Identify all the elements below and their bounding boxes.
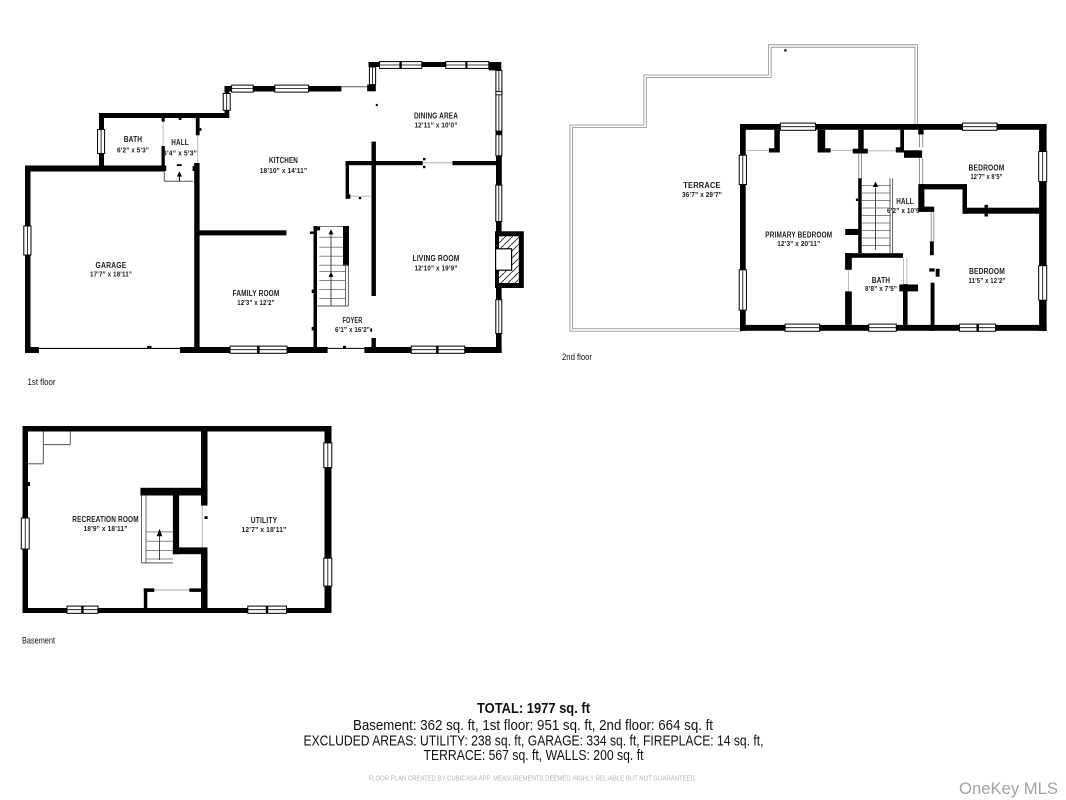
svg-text:12’3” x 12’2”: 12’3” x 12’2” (237, 298, 275, 307)
svg-text:11’5” x 12’2”: 11’5” x 12’2” (969, 276, 1006, 285)
svg-text:TERRACE: TERRACE (683, 181, 721, 190)
svg-text:BEDROOM: BEDROOM (969, 267, 1005, 276)
svg-text:2nd floor: 2nd floor (562, 352, 592, 362)
svg-text:BEDROOM: BEDROOM (969, 164, 1005, 173)
svg-text:3’4” x 5’3”: 3’4” x 5’3” (163, 149, 197, 158)
svg-text:UTILITY: UTILITY (251, 516, 278, 525)
svg-text:HALL: HALL (171, 138, 189, 147)
svg-text:RECREATION ROOM: RECREATION ROOM (72, 515, 139, 524)
svg-text:12’3” x 20’11”: 12’3” x 20’11” (777, 239, 820, 248)
svg-text:6’1” x 16’2”: 6’1” x 16’2” (335, 325, 370, 334)
svg-text:KITCHEN: KITCHEN (269, 156, 298, 165)
svg-text:DINING AREA: DINING AREA (414, 112, 458, 121)
svg-text:12’7” x 8’5”: 12’7” x 8’5” (971, 172, 1003, 181)
svg-text:HALL: HALL (896, 197, 914, 206)
svg-text:TOTAL: 1977 sq. ft: TOTAL: 1977 sq. ft (477, 700, 590, 717)
svg-text:Basement: 362 sq. ft, 1st floo: Basement: 362 sq. ft, 1st floor: 951 sq.… (353, 718, 713, 734)
svg-text:12’11” x 10’0”: 12’11” x 10’0” (415, 121, 458, 130)
svg-text:17’7” x 18’11”: 17’7” x 18’11” (90, 270, 132, 279)
svg-text:12’10” x 19’9”: 12’10” x 19’9” (415, 264, 458, 273)
svg-text:6’2” x 5’3”: 6’2” x 5’3” (117, 146, 149, 155)
svg-text:Basement: Basement (22, 636, 55, 646)
svg-text:18’9” x 18’11”: 18’9” x 18’11” (84, 524, 128, 533)
svg-text:FLOOR PLAN CREATED BY CUBICASA: FLOOR PLAN CREATED BY CUBICASA APP. MEAS… (369, 774, 697, 783)
svg-text:LIVING ROOM: LIVING ROOM (413, 254, 460, 263)
svg-text:12’7” x 18’11”: 12’7” x 18’11” (242, 525, 287, 534)
svg-text:OneKey MLS: OneKey MLS (959, 779, 1058, 798)
svg-text:TERRACE: 567 sq. ft, WALLS: 20: TERRACE: 567 sq. ft, WALLS: 200 sq. ft (424, 748, 644, 764)
svg-text:1st floor: 1st floor (28, 377, 56, 387)
svg-text:FAMILY ROOM: FAMILY ROOM (233, 289, 280, 298)
svg-text:8’8” x 7’5”: 8’8” x 7’5” (865, 284, 897, 293)
svg-text:18’10” x 14’11”: 18’10” x 14’11” (260, 166, 308, 175)
svg-text:36’7” x 29’7”: 36’7” x 29’7” (682, 190, 722, 199)
svg-text:BATH: BATH (124, 135, 143, 144)
